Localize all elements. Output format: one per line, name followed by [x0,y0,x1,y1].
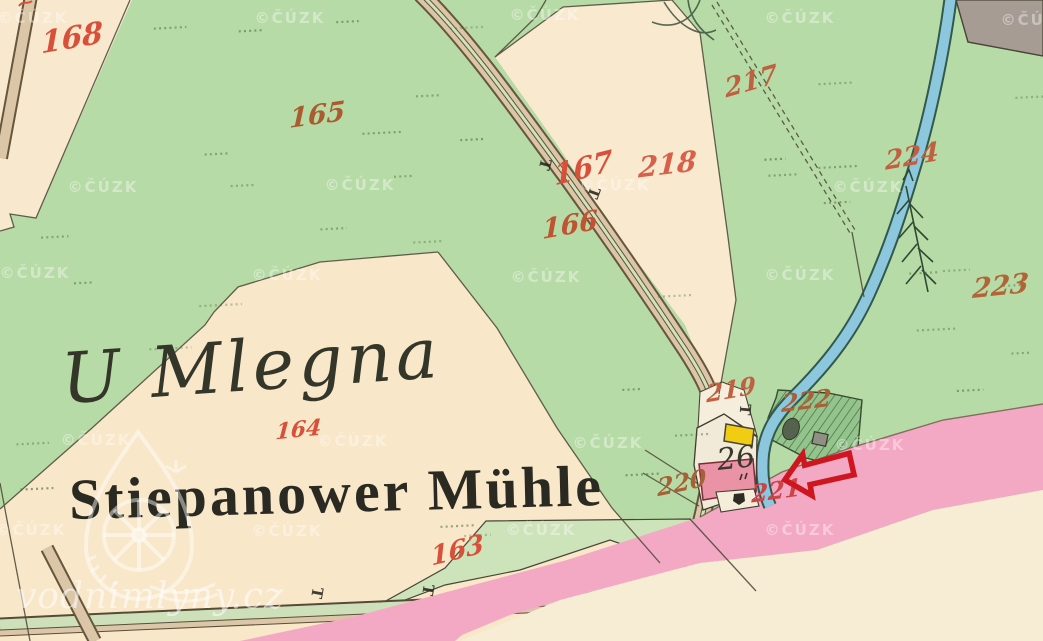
cuzk-watermark: ©ČÚZK [255,8,326,27]
cuzk-watermark: ©ČÚZK [580,175,651,194]
house-number-label: 26 [714,439,757,478]
cuzk-watermark: ©ČÚZK [511,267,582,286]
cuzk-watermark: ©ČÚZK [0,8,68,27]
cuzk-watermark: ©ČÚZK [833,177,904,196]
cuzk-watermark: ©ČÚZK [252,521,323,540]
cuzk-watermark: ©ČÚZK [835,435,906,454]
cuzk-watermark: ©ČÚZK [252,265,323,284]
vodnimlyny-text: vodnimlyny.cz [16,576,284,617]
cadastral-map-svg: U Mlegna Stiepanower Mühle 26 1681651671… [0,0,1043,641]
cuzk-watermark: ©ČÚZK [765,520,836,539]
parcel-number-label: 223 [971,267,1030,305]
cuzk-watermark: ©ČÚZK [325,175,396,194]
cuzk-watermark: ©ČÚZK [506,520,577,539]
cuzk-watermark: ©ČÚZK [68,177,139,196]
cuzk-watermark: ©ČÚZK [573,433,644,452]
cuzk-watermark: ©ČÚZK [0,263,70,282]
gray-shed-icon [812,432,828,447]
cuzk-watermark: ©ČÚZK [765,8,836,27]
cadastral-map-screenshot: U Mlegna Stiepanower Mühle 26 1681651671… [0,0,1043,641]
cuzk-watermark: ©ČÚZK [510,5,581,24]
cuzk-watermark: ©ČÚZK [1001,10,1043,29]
cuzk-watermark: ©ČÚZK [765,265,836,284]
cuzk-watermark: ©ČÚZK [61,430,132,449]
parcel-number-label: 164 [275,414,322,445]
cuzk-watermark: ©ČÚZK [0,520,66,539]
cuzk-watermark: ©ČÚZK [318,431,389,450]
